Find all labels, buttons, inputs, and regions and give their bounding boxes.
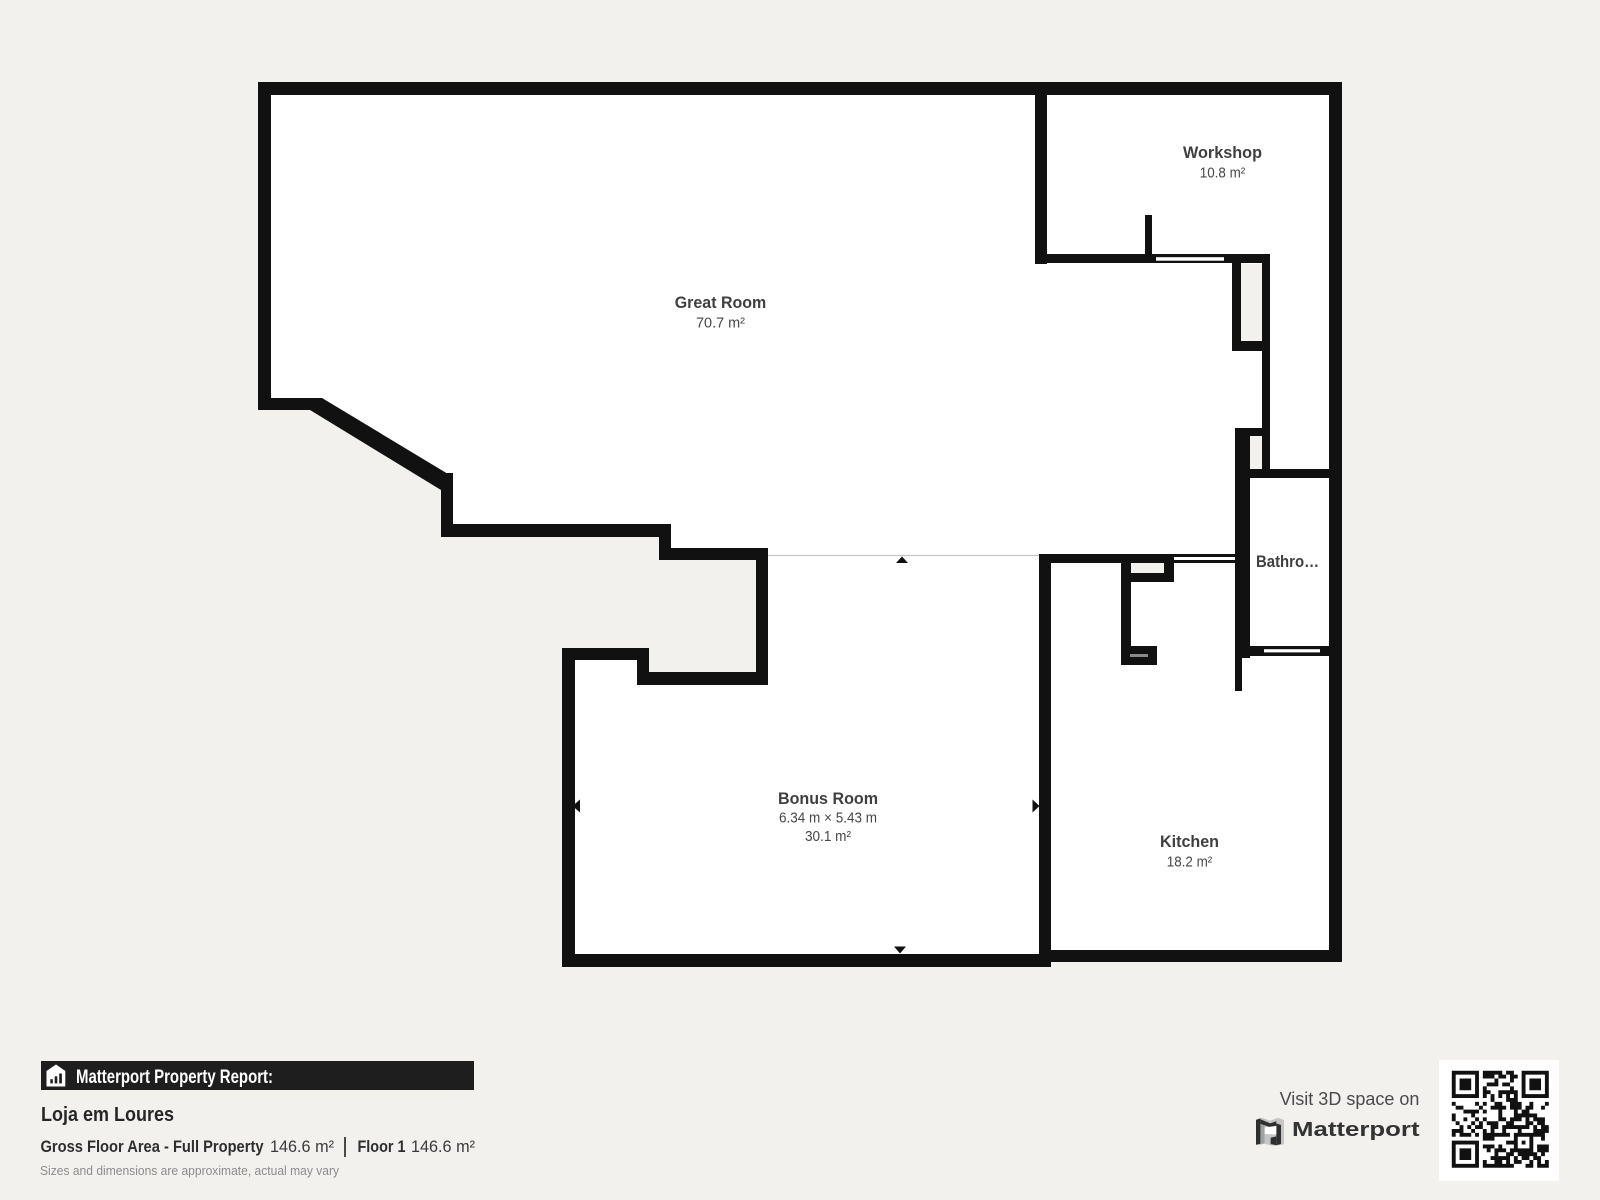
svg-text:6.34 m × 5.43 m: 6.34 m × 5.43 m: [779, 811, 877, 827]
svg-text:10.8 m²: 10.8 m²: [1200, 166, 1246, 182]
svg-text:Matterport Property Report:: Matterport Property Report:: [76, 1067, 273, 1088]
svg-text:Visit 3D space on: Visit 3D space on: [1280, 1089, 1420, 1109]
svg-text:146.6 m²: 146.6 m²: [270, 1138, 334, 1156]
svg-text:30.1 m²: 30.1 m²: [805, 829, 851, 845]
svg-text:Bathro…: Bathro…: [1256, 552, 1319, 571]
svg-text:Loja em Loures: Loja em Loures: [41, 1103, 174, 1126]
svg-text:Floor 1: Floor 1: [358, 1138, 406, 1156]
svg-text:Kitchen: Kitchen: [1160, 832, 1219, 851]
svg-text:Matterport: Matterport: [1292, 1118, 1420, 1141]
svg-text:Bonus Room: Bonus Room: [778, 789, 878, 808]
svg-text:146.6 m²: 146.6 m²: [411, 1138, 475, 1156]
svg-text:Gross Floor Area - Full Proper: Gross Floor Area - Full Property: [41, 1138, 265, 1156]
svg-text:Workshop: Workshop: [1183, 143, 1262, 162]
svg-text:70.7 m²: 70.7 m²: [696, 316, 745, 332]
svg-text:Great Room: Great Room: [675, 293, 767, 312]
svg-text:18.2 m²: 18.2 m²: [1167, 855, 1213, 871]
svg-text:Sizes and dimensions are appro: Sizes and dimensions are approximate, ac…: [40, 1164, 340, 1178]
